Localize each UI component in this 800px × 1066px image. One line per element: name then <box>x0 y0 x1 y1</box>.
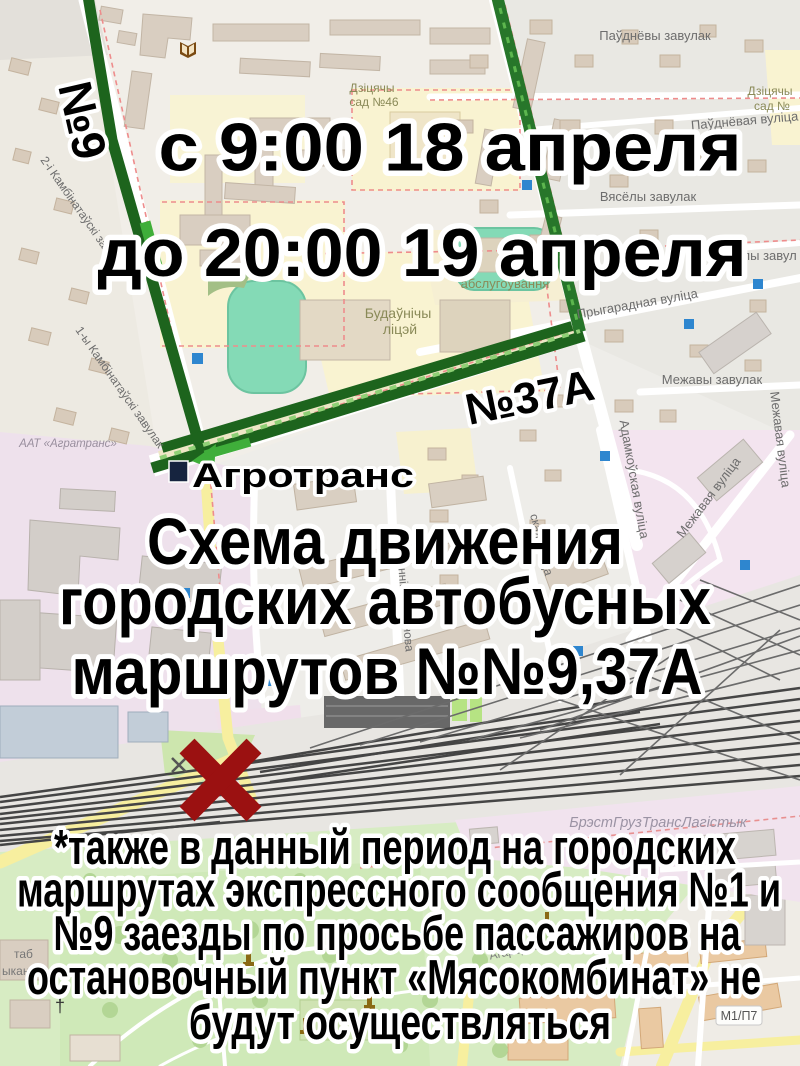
svg-text:сад №: сад № <box>754 99 790 113</box>
svg-text:Паўднёвы завулак: Паўднёвы завулак <box>599 28 711 43</box>
svg-text:Будаўнічы: Будаўнічы <box>365 305 432 321</box>
svg-text:городских автобусных: городских автобусных <box>59 564 711 638</box>
svg-text:сад №46: сад №46 <box>349 95 399 109</box>
svg-text:Дзіцячы: Дзіцячы <box>748 84 793 98</box>
svg-text:ліцэй: ліцэй <box>383 321 417 337</box>
svg-text:будут осуществляться: будут осуществляться <box>189 996 611 1050</box>
svg-text:Дзіцячы: Дзіцячы <box>350 81 395 95</box>
svg-text:с 9:00 18 апреля: с 9:00 18 апреля <box>159 110 742 186</box>
svg-text:М1/П7: М1/П7 <box>721 1009 758 1023</box>
svg-text:до 20:00 19 апреля: до 20:00 19 апреля <box>98 215 747 291</box>
svg-text:Межавы завулак: Межавы завулак <box>662 372 763 387</box>
svg-text:Агротранс: Агротранс <box>192 457 414 495</box>
svg-text:ААТ «Агратранс»: ААТ «Агратранс» <box>18 438 117 450</box>
svg-text:маршрутов №№9,37А: маршрутов №№9,37А <box>72 634 703 708</box>
svg-text:Вясёлы завулак: Вясёлы завулак <box>600 189 697 204</box>
